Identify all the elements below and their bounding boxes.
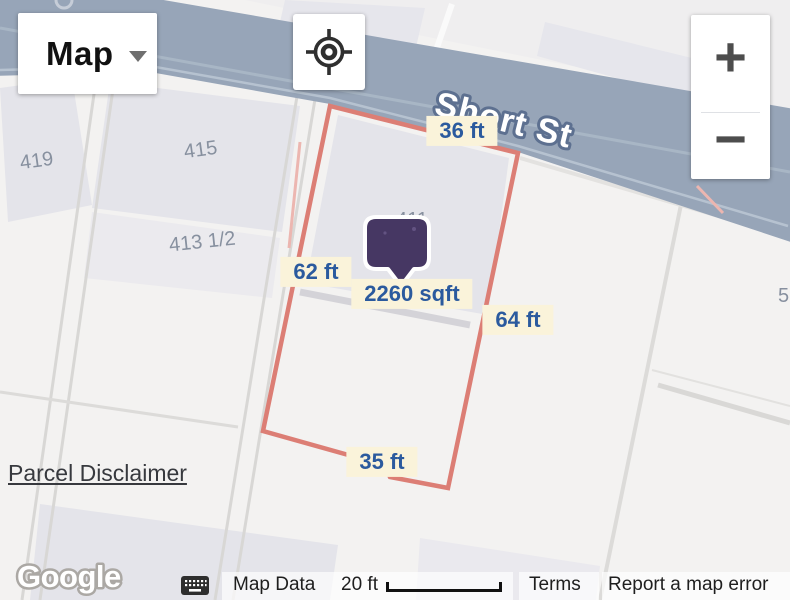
report-map-error-link[interactable]: Report a map error <box>608 574 769 596</box>
zoom-control: + − <box>691 15 770 179</box>
house-number: 5 <box>778 285 789 308</box>
scale-bar <box>386 582 502 592</box>
scale-label: 20 ft <box>341 574 378 596</box>
house-number: 419 <box>19 148 55 175</box>
measurement-label-left: 62 ft <box>280 257 351 287</box>
locate-button[interactable] <box>293 14 365 90</box>
terms-link[interactable]: Terms <box>529 574 581 596</box>
crosshair-icon <box>302 25 356 79</box>
house-number: 415 <box>183 137 219 164</box>
measurement-label-bottom: 35 ft <box>346 447 417 477</box>
google-logo[interactable]: Google <box>14 550 154 598</box>
area-label: 2260 sqft <box>351 279 472 309</box>
svg-text:Google: Google <box>17 559 121 594</box>
map-canvas[interactable]: Short St 419 415 413 1/2 411 5 36 ft 62 … <box>0 0 790 600</box>
zoom-out-button[interactable]: − <box>691 97 770 179</box>
map-type-button[interactable]: Map <box>18 13 157 94</box>
map-type-label: Map <box>46 35 114 73</box>
chevron-down-icon <box>129 51 147 62</box>
measurement-label-right: 64 ft <box>482 305 553 335</box>
keyboard-icon[interactable] <box>180 575 210 596</box>
measurement-label-top: 36 ft <box>426 116 497 146</box>
parcel-disclaimer-link[interactable]: Parcel Disclaimer <box>8 460 187 487</box>
map-data-label: Map Data <box>233 574 315 596</box>
zoom-in-button[interactable]: + <box>691 15 770 97</box>
